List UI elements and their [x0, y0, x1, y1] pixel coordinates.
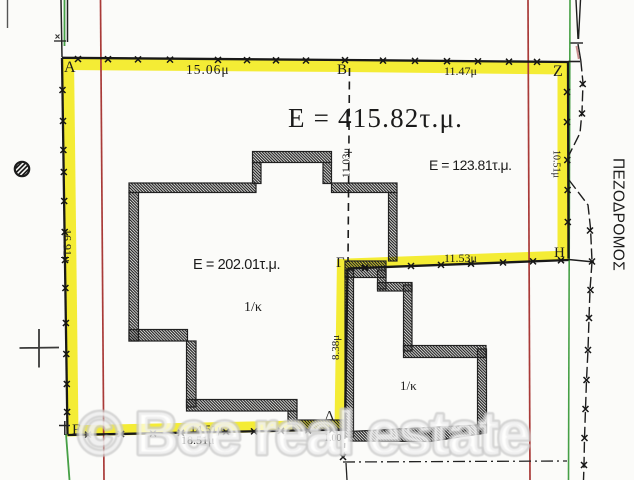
svg-text:E = 202.01τ.μ.: E = 202.01τ.μ. — [193, 257, 280, 273]
svg-text:1/κ: 1/κ — [400, 378, 417, 393]
svg-text:Β: Β — [337, 62, 347, 78]
svg-text:Z: Z — [553, 63, 563, 80]
svg-text:10.51μ: 10.51μ — [551, 150, 562, 178]
svg-text:Γ: Γ — [336, 255, 345, 271]
svg-text:E = 415.82τ.μ.: E = 415.82τ.μ. — [288, 103, 463, 133]
svg-text:A: A — [64, 59, 76, 76]
svg-text:ΠΕΖΟΔΡΟΜΟΣ: ΠΕΖΟΔΡΟΜΟΣ — [610, 158, 627, 271]
svg-text:15.06μ: 15.06μ — [186, 62, 230, 77]
svg-text:Η: Η — [554, 245, 565, 261]
svg-text:16.91μ: 16.91μ — [61, 229, 75, 262]
svg-text:© Bee real estate: © Bee real estate — [78, 400, 529, 467]
svg-text:11.53μ: 11.53μ — [444, 251, 477, 265]
svg-text:E = 123.81τ.μ.: E = 123.81τ.μ. — [429, 157, 512, 173]
svg-text:8.38μ: 8.38μ — [330, 335, 342, 360]
svg-text:11.03μ: 11.03μ — [341, 148, 353, 178]
svg-text:11.47μ: 11.47μ — [444, 64, 477, 78]
svg-text:1/κ: 1/κ — [244, 300, 262, 315]
